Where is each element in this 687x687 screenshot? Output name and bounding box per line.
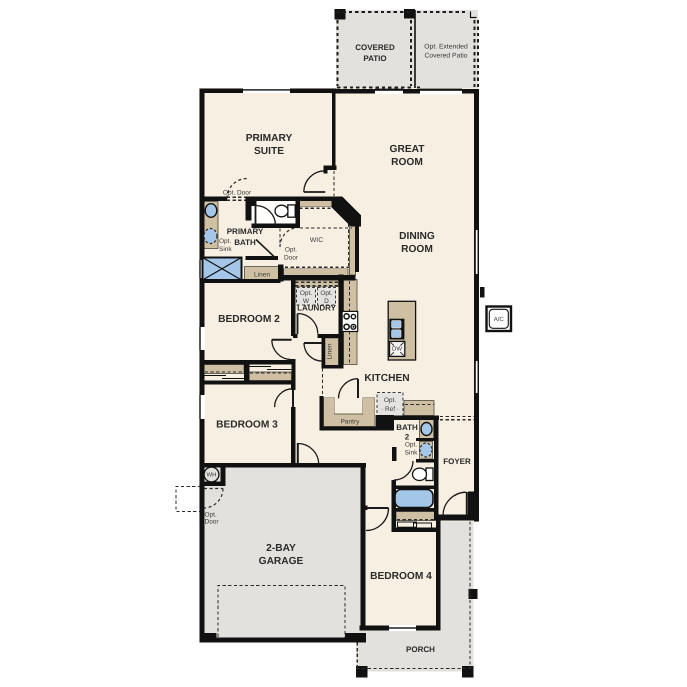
- svg-text:2: 2: [405, 433, 410, 442]
- svg-text:D: D: [324, 298, 329, 305]
- svg-text:SUITE: SUITE: [254, 146, 284, 157]
- svg-text:ROOM: ROOM: [391, 157, 423, 168]
- svg-text:GARAGE: GARAGE: [259, 556, 304, 567]
- svg-text:BEDROOM 2: BEDROOM 2: [218, 314, 280, 325]
- svg-text:DINING: DINING: [399, 231, 435, 242]
- svg-text:COVERED: COVERED: [355, 43, 395, 52]
- svg-text:Opt. Door: Opt. Door: [223, 190, 252, 197]
- svg-text:WIC: WIC: [310, 237, 323, 244]
- svg-text:PORCH: PORCH: [406, 645, 435, 654]
- svg-text:Linen: Linen: [254, 272, 270, 279]
- svg-text:Opt.: Opt.: [384, 397, 396, 404]
- svg-text:· Ref ·: · Ref ·: [381, 406, 399, 413]
- svg-text:WH: WH: [207, 472, 217, 479]
- svg-text:Pantry: Pantry: [341, 419, 361, 426]
- svg-text:DW: DW: [392, 346, 402, 353]
- svg-text:KITCHEN: KITCHEN: [364, 373, 409, 384]
- svg-text:PATIO: PATIO: [363, 54, 386, 63]
- svg-text:Opt.: Opt.: [219, 238, 231, 245]
- svg-text:Opt. Extended: Opt. Extended: [424, 44, 468, 51]
- svg-text:Sink: Sink: [219, 246, 232, 253]
- svg-text:Linen: Linen: [327, 343, 334, 359]
- svg-text:ROOM: ROOM: [401, 244, 433, 255]
- svg-text:Opt.: Opt.: [320, 290, 332, 297]
- svg-text:Covered Patio: Covered Patio: [424, 53, 467, 60]
- svg-text:Opt.: Opt.: [405, 442, 417, 449]
- svg-text:PRIMARY: PRIMARY: [227, 227, 264, 236]
- svg-text:A/C: A/C: [494, 316, 505, 323]
- svg-text:Door: Door: [284, 255, 299, 262]
- svg-text:BEDROOM 3: BEDROOM 3: [216, 420, 278, 431]
- svg-text:2-BAY: 2-BAY: [266, 543, 296, 554]
- svg-text:BATH: BATH: [396, 423, 418, 432]
- svg-text:Opt.: Opt.: [300, 290, 312, 297]
- svg-text:W: W: [303, 298, 310, 305]
- svg-text:Opt.: Opt.: [285, 247, 297, 254]
- svg-text:BATH: BATH: [234, 238, 256, 247]
- svg-text:FOYER: FOYER: [443, 457, 471, 466]
- svg-text:BEDROOM 4: BEDROOM 4: [370, 571, 432, 582]
- svg-text:PRIMARY: PRIMARY: [246, 133, 293, 144]
- svg-text:Sink: Sink: [405, 450, 418, 457]
- svg-text:Opt.: Opt.: [205, 512, 217, 519]
- svg-text:Door: Door: [205, 519, 220, 526]
- svg-text:GREAT: GREAT: [390, 144, 426, 155]
